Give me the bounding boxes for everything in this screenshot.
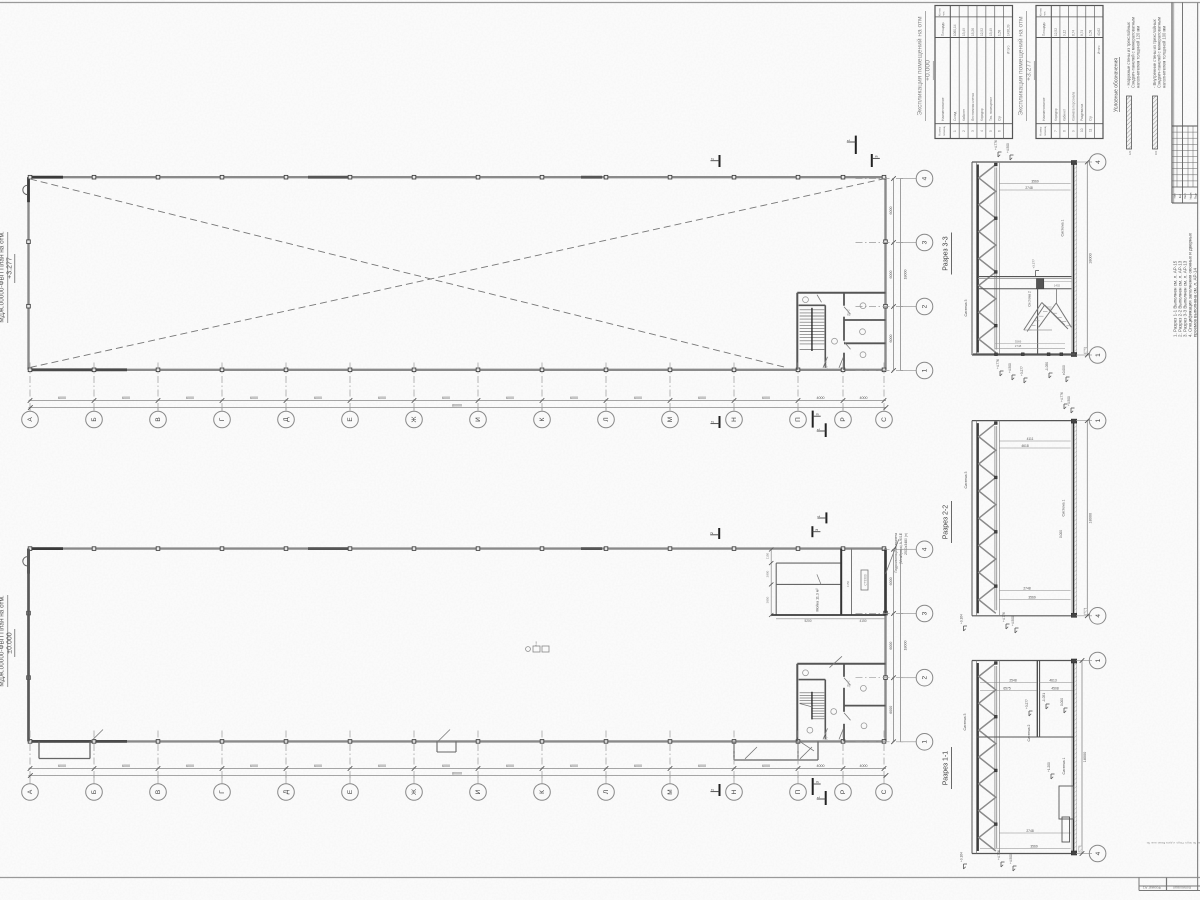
svg-text:6000: 6000 bbox=[58, 764, 66, 768]
svg-text:3850: 3850 bbox=[766, 596, 770, 603]
svg-text:6000: 6000 bbox=[889, 207, 893, 215]
svg-text:1,58: 1,58 bbox=[998, 30, 1002, 36]
svg-text:4000: 4000 bbox=[817, 764, 825, 768]
svg-text:С: С bbox=[881, 417, 888, 422]
svg-text:Наименование: Наименование bbox=[941, 97, 945, 121]
svg-text:П: П bbox=[795, 789, 802, 794]
svg-text:Система 1: Система 1 bbox=[1061, 219, 1065, 236]
svg-text:1: 1 bbox=[817, 515, 821, 517]
svg-text:СТ3300: СТ3300 bbox=[864, 574, 868, 585]
svg-text:Разрез 2-2: Разрез 2-2 bbox=[943, 505, 950, 539]
svg-text:6000: 6000 bbox=[314, 764, 322, 768]
svg-text:6000: 6000 bbox=[634, 764, 642, 768]
svg-text:18000: 18000 bbox=[1089, 253, 1093, 264]
svg-text:В: В bbox=[155, 417, 162, 421]
svg-text:3569: 3569 bbox=[1015, 339, 1022, 343]
svg-text:6000: 6000 bbox=[762, 396, 770, 400]
svg-text:6000: 6000 bbox=[889, 335, 893, 343]
svg-text:Коридор: Коридор bbox=[980, 108, 984, 121]
svg-text:4613: 4613 bbox=[1049, 678, 1057, 682]
svg-text:МДЖ.00000-ФВП План на отм.: МДЖ.00000-ФВП План на отм. bbox=[0, 595, 6, 686]
svg-text:+4.500: +4.500 bbox=[1006, 143, 1010, 153]
svg-text:12,52: 12,52 bbox=[980, 28, 984, 36]
svg-text:Экспликация помещений на отм: Экспликация помещений на отм bbox=[1017, 16, 1025, 116]
svg-text:6000: 6000 bbox=[698, 764, 706, 768]
svg-text:Комната персонала: Комната персонала bbox=[1071, 92, 1075, 121]
svg-text:+4.776: +4.776 bbox=[996, 359, 1000, 369]
svg-text:МДЖ.00000-ФВП План на отм.: МДЖ.00000-ФВП План на отм. bbox=[0, 231, 6, 322]
svg-text:+9.164: +9.164 bbox=[959, 852, 963, 862]
svg-text:Мойка 11,3 м²: Мойка 11,3 м² bbox=[816, 588, 820, 612]
svg-text:0.000: 0.000 bbox=[1059, 530, 1063, 538]
svg-text:+4.500: +4.500 bbox=[1008, 363, 1012, 373]
svg-text:1: 1 bbox=[817, 796, 821, 798]
svg-text:6000: 6000 bbox=[314, 396, 322, 400]
svg-text:1: 1 bbox=[817, 428, 821, 430]
svg-text:2: 2 bbox=[710, 532, 714, 534]
svg-text:К: К bbox=[539, 790, 546, 794]
svg-text:Е: Е bbox=[347, 789, 354, 794]
svg-text:2748: 2748 bbox=[1023, 586, 1031, 590]
svg-text:чел.: чел. bbox=[943, 11, 946, 16]
svg-text:1,58: 1,58 bbox=[1089, 30, 1093, 36]
svg-text:±0.000: ±0.000 bbox=[7, 632, 14, 653]
svg-text:120: 120 bbox=[1128, 150, 1132, 155]
svg-text:И: И bbox=[475, 417, 482, 422]
svg-text:6000: 6000 bbox=[506, 764, 514, 768]
svg-text:6000: 6000 bbox=[250, 764, 258, 768]
svg-text:Кабинет: Кабинет bbox=[1063, 108, 1067, 121]
svg-text:2: 2 bbox=[962, 130, 966, 132]
svg-text:+4.776: +4.776 bbox=[1002, 612, 1006, 622]
svg-text:Г: Г bbox=[219, 790, 226, 794]
svg-text:±0.000: ±0.000 bbox=[1062, 365, 1066, 375]
svg-text:6000: 6000 bbox=[186, 764, 194, 768]
svg-text:4: 4 bbox=[922, 547, 929, 551]
svg-text:Система 1: Система 1 bbox=[1062, 757, 1066, 774]
svg-text:Б: Б bbox=[91, 417, 98, 421]
svg-text:1150: 1150 bbox=[846, 580, 850, 587]
svg-text:3569: 3569 bbox=[1028, 595, 1036, 599]
svg-text:Гидроизоляция парапета: Гидроизоляция парапета bbox=[894, 533, 898, 573]
svg-text:И: И bbox=[475, 789, 482, 794]
svg-text:Площадь: Площадь bbox=[1042, 22, 1046, 36]
svg-text:Итого: Итого bbox=[1097, 45, 1101, 54]
svg-text:В: В bbox=[155, 790, 162, 794]
svg-text:+3.277: +3.277 bbox=[1025, 699, 1029, 709]
svg-text:18000: 18000 bbox=[1083, 752, 1087, 763]
svg-text:4000: 4000 bbox=[817, 396, 825, 400]
svg-text:6000: 6000 bbox=[122, 396, 130, 400]
svg-text:11: 11 bbox=[1089, 128, 1093, 132]
svg-text:М: М bbox=[667, 417, 674, 422]
svg-text:1: 1 bbox=[1095, 353, 1102, 357]
svg-text:чел.: чел. bbox=[1044, 11, 1047, 16]
svg-text:Г: Г bbox=[219, 417, 226, 421]
svg-text:2: 2 bbox=[710, 789, 714, 791]
svg-text:Номер: Номер bbox=[1039, 126, 1043, 136]
svg-text:2900: 2900 bbox=[766, 570, 770, 577]
svg-text:помещ.: помещ. bbox=[1043, 126, 1047, 136]
svg-text:6000: 6000 bbox=[889, 577, 893, 585]
svg-text:+1.200: +1.200 bbox=[1047, 762, 1051, 772]
svg-text:А: А bbox=[27, 417, 34, 422]
svg-text:6000: 6000 bbox=[570, 396, 578, 400]
svg-text:Р: Р bbox=[840, 790, 847, 794]
svg-text:5200: 5200 bbox=[804, 619, 811, 623]
svg-text:4150: 4150 bbox=[859, 619, 866, 623]
svg-text:+3.277: +3.277 bbox=[7, 257, 14, 279]
svg-text:Кол-во: Кол-во bbox=[938, 7, 942, 16]
svg-text:2748: 2748 bbox=[1015, 344, 1022, 348]
svg-text:Лестничная клетка: Лестничная клетка bbox=[971, 93, 975, 121]
svg-text:1402: 1402 bbox=[1054, 284, 1061, 288]
svg-text:Номер: Номер bbox=[938, 126, 942, 136]
svg-text:Система 3: Система 3 bbox=[964, 471, 968, 488]
svg-text:Формат А1: Формат А1 bbox=[1143, 886, 1161, 890]
svg-text:6000: 6000 bbox=[889, 642, 893, 650]
svg-text:3: 3 bbox=[922, 611, 929, 615]
svg-text:3: 3 bbox=[922, 240, 929, 244]
svg-text:Н: Н bbox=[731, 417, 738, 422]
svg-text:Ж: Ж bbox=[411, 416, 418, 422]
svg-text:3569: 3569 bbox=[1031, 179, 1039, 183]
svg-text:С/у: С/у bbox=[1089, 116, 1093, 121]
svg-text:С/у: С/у bbox=[998, 116, 1002, 121]
svg-text:9: 9 bbox=[1071, 130, 1075, 132]
svg-text:Коридор: Коридор bbox=[1054, 108, 1058, 121]
svg-text:Дв-2: Дв-2 bbox=[847, 309, 851, 316]
svg-text:+4.776: +4.776 bbox=[994, 140, 998, 150]
svg-text:+9.164: +9.164 bbox=[959, 614, 963, 624]
svg-text:Люк: Люк bbox=[534, 641, 538, 647]
svg-text:18000: 18000 bbox=[1089, 513, 1093, 524]
svg-text:6000: 6000 bbox=[442, 764, 450, 768]
svg-text:Н: Н bbox=[731, 789, 738, 794]
svg-text:Подп: Подп bbox=[1193, 192, 1197, 199]
svg-text:Система 2: Система 2 bbox=[1027, 724, 1031, 741]
svg-text:3: 3 bbox=[971, 130, 975, 132]
svg-text:4508: 4508 bbox=[1051, 686, 1059, 690]
svg-text:8: 8 bbox=[1063, 130, 1067, 132]
svg-text:+3.277: +3.277 bbox=[1031, 259, 1035, 269]
svg-text:18000: 18000 bbox=[903, 641, 907, 651]
svg-text:4: 4 bbox=[1095, 614, 1102, 618]
svg-text:Е: Е bbox=[347, 417, 354, 422]
svg-text:Тех. помещение: Тех. помещение bbox=[989, 97, 993, 121]
svg-text:6000: 6000 bbox=[186, 396, 194, 400]
svg-text:6000: 6000 bbox=[250, 396, 258, 400]
svg-text:Дв-3: Дв-3 bbox=[824, 733, 828, 740]
svg-text:Изм: Изм bbox=[1173, 193, 1177, 198]
svg-text:7: 7 bbox=[1054, 130, 1058, 132]
svg-text:1: 1 bbox=[847, 139, 851, 141]
svg-text:+4.776: +4.776 bbox=[1060, 392, 1064, 402]
svg-text:Наименование: Наименование bbox=[1042, 97, 1046, 121]
svg-text:1150: 1150 bbox=[766, 552, 770, 559]
svg-text:3: 3 bbox=[815, 781, 819, 783]
svg-text:Л: Л bbox=[603, 790, 610, 794]
svg-text:№док: №док bbox=[1190, 192, 1193, 200]
svg-text:6: 6 bbox=[998, 130, 1002, 132]
svg-text:6000: 6000 bbox=[889, 271, 893, 279]
svg-text:Условные обозначения: Условные обозначения bbox=[1114, 58, 1120, 112]
svg-text:2548: 2548 bbox=[1009, 678, 1017, 682]
svg-text:наполнителем толщиной 120 мм: наполнителем толщиной 120 мм bbox=[1136, 26, 1141, 88]
svg-text:1: 1 bbox=[1095, 658, 1102, 662]
svg-text:+4.500: +4.500 bbox=[1067, 396, 1071, 406]
svg-text:Экспликация помещений на отм: Экспликация помещений на отм bbox=[916, 16, 924, 116]
svg-text:8,74: 8,74 bbox=[1080, 30, 1084, 36]
svg-text:3: 3 bbox=[815, 529, 819, 531]
svg-text:помещ.: помещ. bbox=[942, 126, 946, 136]
svg-text:4618: 4618 bbox=[1021, 444, 1029, 448]
svg-text:+4.500: +4.500 bbox=[1011, 616, 1015, 626]
svg-text:Склад: Склад bbox=[953, 112, 957, 121]
svg-text:Лист: Лист bbox=[1183, 192, 1187, 198]
svg-text:Система 2: Система 2 bbox=[1028, 291, 1032, 307]
svg-text:6000: 6000 bbox=[889, 706, 893, 714]
svg-text:проемов выполнена см. л. АР-14: проемов выполнена см. л. АР-14 bbox=[1193, 268, 1198, 337]
svg-text:2748: 2748 bbox=[1025, 186, 1033, 190]
svg-text:1: 1 bbox=[922, 368, 929, 372]
svg-text:С: С bbox=[881, 789, 888, 794]
svg-text:Площадь: Площадь bbox=[941, 22, 945, 36]
svg-text:3: 3 bbox=[874, 156, 878, 158]
svg-text:Раздевалка: Раздевалка bbox=[1080, 103, 1084, 121]
svg-text:10: 10 bbox=[1080, 128, 1084, 132]
svg-text:1: 1 bbox=[953, 130, 957, 132]
svg-text:А: А bbox=[27, 789, 34, 794]
svg-text:Итого: Итого bbox=[1007, 45, 1011, 54]
svg-text:+4.776: +4.776 bbox=[997, 850, 1001, 860]
svg-text:2: 2 bbox=[922, 304, 929, 308]
svg-text:9,12: 9,12 bbox=[1063, 30, 1067, 36]
svg-text:Кол: Кол bbox=[1178, 193, 1182, 198]
svg-text:Б: Б bbox=[91, 790, 98, 794]
svg-text:4111: 4111 bbox=[1027, 437, 1034, 441]
svg-text:100: 100 bbox=[1154, 150, 1158, 155]
svg-text:15,26: 15,26 bbox=[971, 28, 975, 36]
svg-text:6000: 6000 bbox=[378, 764, 386, 768]
svg-text:3569: 3569 bbox=[1030, 844, 1038, 848]
svg-text:4: 4 bbox=[1095, 851, 1102, 855]
svg-text:5: 5 bbox=[989, 130, 993, 132]
svg-text:2: 2 bbox=[922, 676, 929, 680]
svg-text:6000: 6000 bbox=[378, 396, 386, 400]
svg-text:0.000: 0.000 bbox=[1060, 698, 1064, 706]
svg-text:Копировал: Копировал bbox=[1173, 886, 1191, 890]
svg-text:40,62: 40,62 bbox=[1097, 28, 1101, 36]
svg-text:1060,14: 1060,14 bbox=[953, 24, 957, 36]
svg-text:4000: 4000 bbox=[860, 764, 868, 768]
svg-text:+3.277: +3.277 bbox=[1026, 60, 1033, 81]
svg-text:К: К bbox=[539, 417, 546, 421]
svg-text:6000: 6000 bbox=[122, 764, 130, 768]
svg-text:Д: Д bbox=[283, 417, 290, 422]
svg-text:4000: 4000 bbox=[860, 396, 868, 400]
svg-text:М: М bbox=[667, 789, 674, 794]
svg-text:Система 3: Система 3 bbox=[964, 299, 968, 316]
svg-text:80000: 80000 bbox=[452, 772, 462, 776]
svg-text:1: 1 bbox=[1095, 418, 1102, 422]
svg-text:6000: 6000 bbox=[442, 396, 450, 400]
svg-text:Разрез 3-3: Разрез 3-3 bbox=[943, 236, 950, 270]
svg-text:2748: 2748 bbox=[1026, 829, 1034, 833]
svg-text:-1.050: -1.050 bbox=[1045, 362, 1049, 371]
svg-text:Р: Р bbox=[840, 417, 847, 421]
svg-text:80000: 80000 bbox=[452, 404, 462, 408]
svg-text:Система 1: Система 1 bbox=[1062, 499, 1066, 516]
svg-text:1436,39: 1436,39 bbox=[1007, 24, 1011, 36]
svg-text:1: 1 bbox=[922, 740, 929, 744]
svg-text:6000: 6000 bbox=[58, 396, 66, 400]
svg-text:6000: 6000 bbox=[570, 764, 578, 768]
svg-text:6000: 6000 bbox=[634, 396, 642, 400]
svg-text:18000: 18000 bbox=[903, 270, 907, 280]
svg-text:6575: 6575 bbox=[1003, 686, 1011, 690]
svg-text:3: 3 bbox=[815, 413, 819, 415]
svg-text:Дв-2: Дв-2 bbox=[847, 680, 851, 687]
svg-text:(Мембрана) А-901Е: (Мембрана) А-901Е bbox=[899, 532, 903, 564]
svg-text:Система 3: Система 3 bbox=[963, 713, 967, 730]
svg-text:П: П bbox=[795, 417, 802, 422]
svg-text:Кол-во: Кол-во bbox=[1039, 7, 1043, 16]
svg-text:Кабинет: Кабинет bbox=[962, 108, 966, 121]
svg-text:4: 4 bbox=[1095, 160, 1102, 164]
svg-text:4: 4 bbox=[922, 176, 929, 180]
svg-text:Ж: Ж bbox=[411, 789, 418, 795]
svg-text:Дв-3: Дв-3 bbox=[824, 361, 828, 368]
svg-text:наполнителем толщиной 100 мм: наполнителем толщиной 100 мм bbox=[1162, 26, 1167, 88]
svg-text:2: 2 bbox=[710, 158, 714, 160]
svg-text:2: 2 bbox=[710, 421, 714, 423]
svg-text:6000: 6000 bbox=[698, 396, 706, 400]
svg-text:12,52: 12,52 bbox=[1054, 28, 1058, 36]
svg-text:6000: 6000 bbox=[762, 764, 770, 768]
svg-text:13,49: 13,49 bbox=[962, 28, 966, 36]
svg-text:+0.000: +0.000 bbox=[925, 60, 932, 81]
svg-text:+3.277: +3.277 bbox=[1020, 366, 1024, 376]
svg-text:-1.051: -1.051 bbox=[1042, 693, 1046, 702]
svg-text:Разрез 1-1: Разрез 1-1 bbox=[943, 751, 950, 785]
svg-text:4: 4 bbox=[980, 130, 984, 132]
svg-text:8,74: 8,74 bbox=[1071, 30, 1075, 36]
svg-text:Л: Л bbox=[603, 417, 610, 421]
svg-text:Д: Д bbox=[283, 789, 290, 794]
svg-text:6000: 6000 bbox=[506, 396, 514, 400]
svg-text:13,49: 13,49 bbox=[989, 28, 993, 36]
svg-text:Инв. № подл. Подп. и дата: Инв. № подл. Подп. и дата Взам. инв. № bbox=[1146, 841, 1200, 845]
svg-text:+4.500: +4.500 bbox=[1009, 854, 1013, 864]
svg-text:2500х3480 (н): 2500х3480 (н) bbox=[904, 533, 908, 555]
